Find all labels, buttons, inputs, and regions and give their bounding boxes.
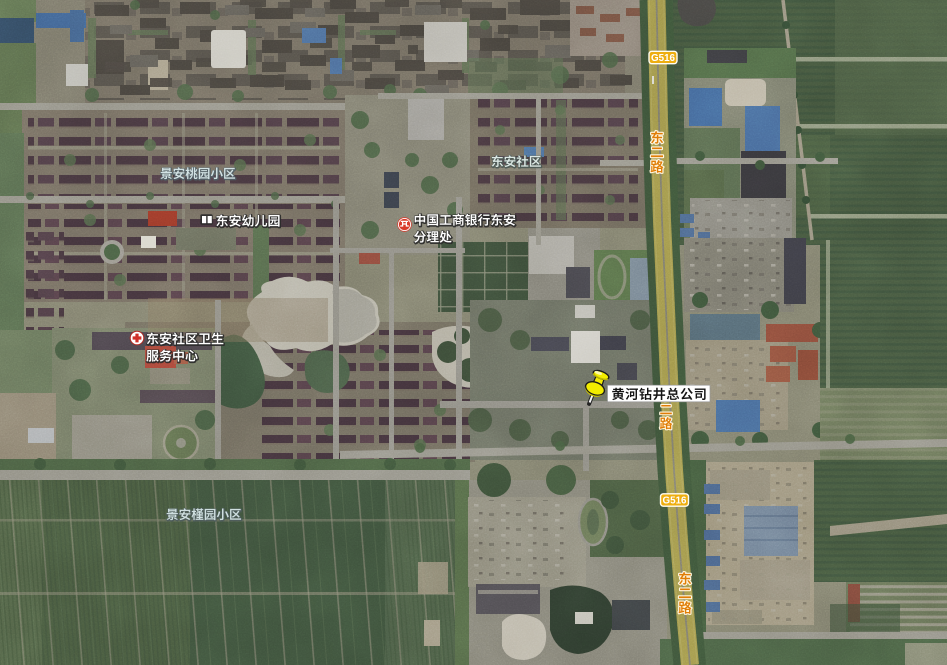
svg-text:G516: G516 [651, 53, 676, 64]
svg-text:G516: G516 [663, 496, 688, 507]
